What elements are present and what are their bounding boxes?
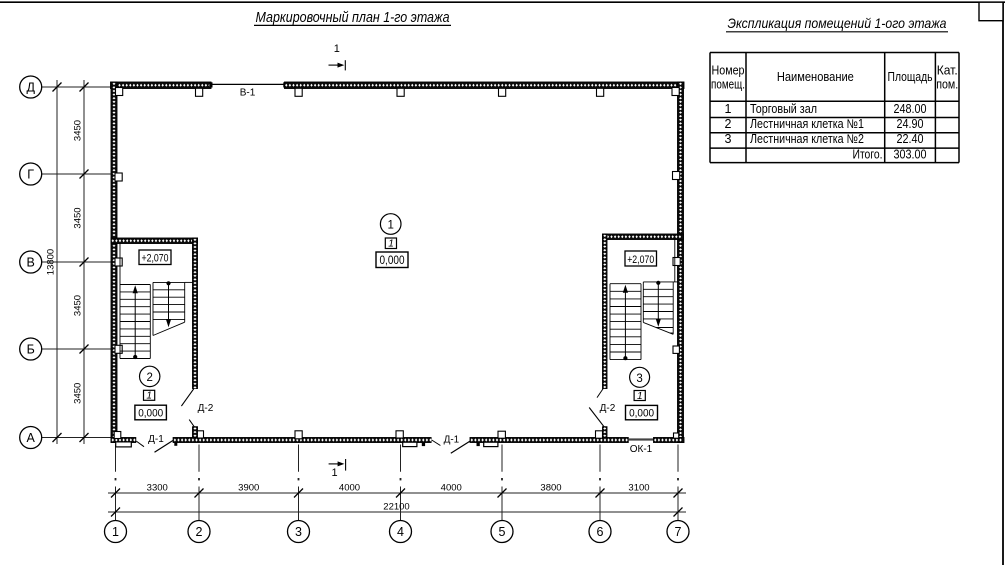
svg-text:1: 1	[637, 391, 643, 402]
svg-text:1: 1	[388, 239, 394, 250]
svg-text:3800: 3800	[540, 483, 561, 494]
svg-text:Д: Д	[26, 80, 35, 94]
svg-text:0,000: 0,000	[380, 255, 405, 267]
svg-text:+2,070: +2,070	[142, 253, 169, 265]
svg-text:3300: 3300	[147, 483, 168, 494]
svg-text:Б: Б	[27, 342, 35, 356]
svg-text:7: 7	[675, 525, 682, 539]
svg-text:Торговый зал: Торговый зал	[750, 102, 817, 116]
svg-text:Д-1: Д-1	[444, 435, 460, 446]
svg-text:Лестничная клетка №2: Лестничная клетка №2	[750, 132, 864, 146]
svg-text:В-1: В-1	[240, 88, 256, 99]
svg-text:2: 2	[725, 117, 732, 131]
svg-text:4: 4	[397, 525, 404, 539]
svg-text:Д-2: Д-2	[198, 403, 214, 414]
svg-text:1: 1	[334, 43, 340, 55]
svg-text:Д-2: Д-2	[600, 403, 616, 414]
svg-text:1: 1	[146, 391, 152, 402]
svg-text:пом.: пом.	[936, 77, 958, 91]
svg-text:В: В	[27, 255, 35, 269]
svg-text:Лестничная клетка №1: Лестничная клетка №1	[750, 117, 864, 131]
svg-text:4000: 4000	[339, 483, 360, 494]
svg-text:1: 1	[387, 220, 393, 232]
svg-text:13800: 13800	[46, 249, 57, 275]
svg-text:22.40: 22.40	[897, 132, 924, 146]
svg-text:Итого.: Итого.	[853, 148, 883, 162]
svg-text:3100: 3100	[628, 483, 649, 494]
svg-text:2: 2	[146, 372, 152, 384]
svg-text:0,000: 0,000	[138, 408, 163, 420]
svg-text:5: 5	[499, 525, 506, 539]
svg-text:помещ.: помещ.	[711, 77, 745, 91]
svg-text:3450: 3450	[73, 383, 84, 404]
svg-text:Номер: Номер	[712, 63, 745, 77]
svg-text:+2,070: +2,070	[627, 254, 654, 266]
svg-text:Г: Г	[27, 167, 34, 181]
svg-text:Д-1: Д-1	[148, 434, 164, 445]
svg-text:303.00: 303.00	[894, 148, 927, 162]
svg-text:1: 1	[725, 102, 732, 116]
svg-text:1: 1	[331, 467, 337, 479]
svg-text:Наименование: Наименование	[777, 70, 854, 84]
svg-text:Маркировочный план 1-го этажа: Маркировочный план 1-го этажа	[256, 10, 450, 26]
svg-text:3450: 3450	[73, 295, 84, 316]
svg-text:Экспликация помещений 1-ого эт: Экспликация помещений 1-ого этажа	[728, 15, 947, 31]
svg-text:248.00: 248.00	[894, 102, 927, 116]
svg-text:4000: 4000	[441, 483, 462, 494]
svg-text:22100: 22100	[383, 502, 409, 513]
svg-text:0,000: 0,000	[629, 408, 654, 420]
svg-text:3450: 3450	[73, 207, 84, 228]
svg-text:3900: 3900	[238, 483, 259, 494]
svg-text:ОК-1: ОК-1	[630, 444, 653, 455]
svg-text:2: 2	[196, 525, 203, 539]
svg-text:3: 3	[295, 525, 302, 539]
svg-text:1: 1	[112, 525, 119, 539]
svg-text:3: 3	[725, 132, 732, 146]
svg-text:3: 3	[636, 373, 642, 385]
svg-text:24.90: 24.90	[897, 117, 924, 131]
svg-text:6: 6	[597, 525, 604, 539]
svg-text:А: А	[27, 431, 36, 445]
svg-text:3450: 3450	[73, 120, 84, 141]
svg-text:Кат.: Кат.	[937, 63, 958, 77]
svg-text:Площадь: Площадь	[888, 70, 933, 84]
